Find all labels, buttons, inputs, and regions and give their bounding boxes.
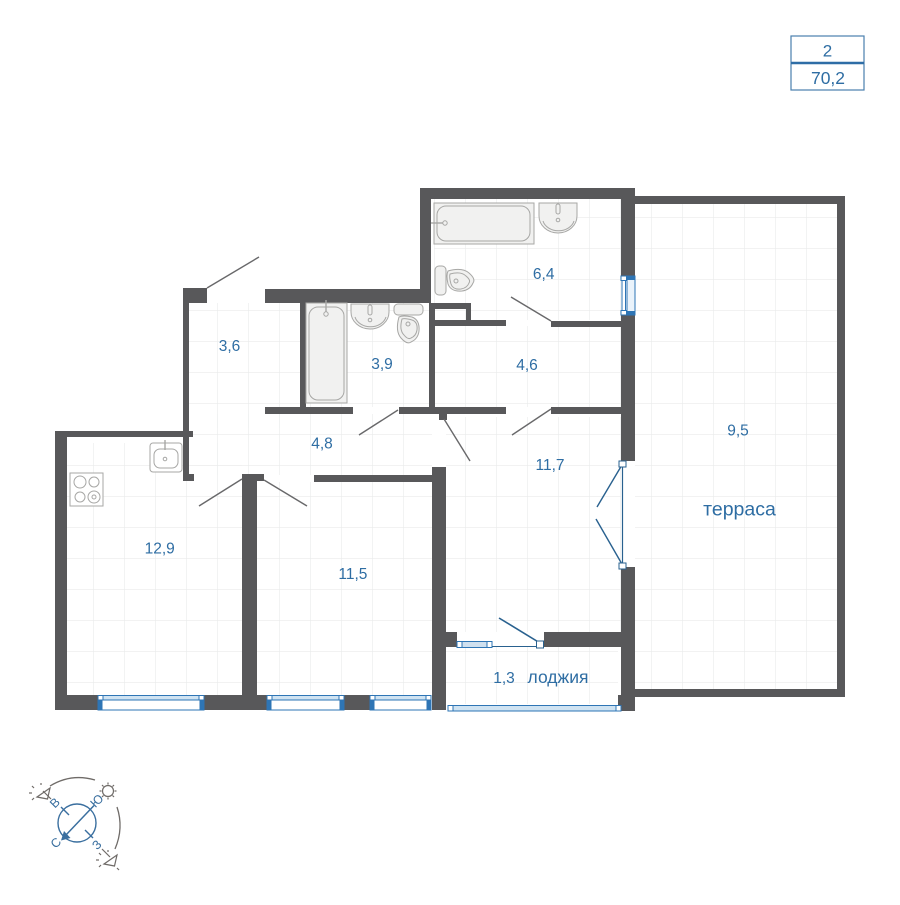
svg-text:терраса: терраса <box>703 499 776 521</box>
svg-text:2: 2 <box>823 42 832 61</box>
svg-text:12,9: 12,9 <box>145 541 175 558</box>
svg-text:11,7: 11,7 <box>535 457 564 474</box>
svg-text:70,2: 70,2 <box>811 68 845 88</box>
svg-text:9,5: 9,5 <box>727 423 749 440</box>
svg-text:1,3: 1,3 <box>493 670 515 687</box>
svg-text:6,4: 6,4 <box>533 266 555 283</box>
svg-text:4,8: 4,8 <box>311 436 333 453</box>
svg-text:3,9: 3,9 <box>371 356 393 373</box>
svg-text:11,5: 11,5 <box>338 566 367 583</box>
svg-text:4,6: 4,6 <box>516 357 538 374</box>
svg-text:лоджия: лоджия <box>528 667 589 687</box>
svg-text:3,6: 3,6 <box>219 338 241 355</box>
